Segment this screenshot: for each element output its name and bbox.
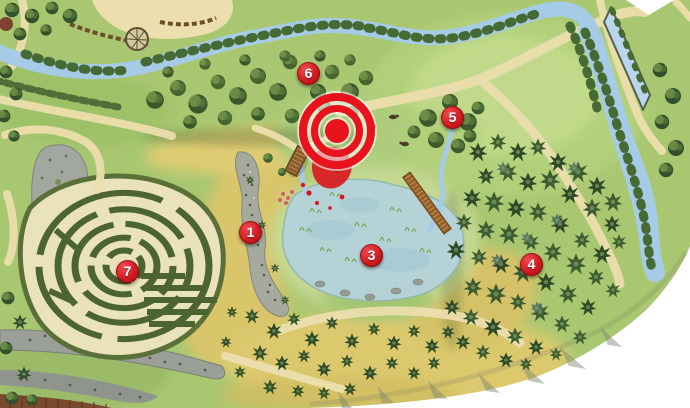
willow-dome-structure (126, 28, 148, 50)
map-marker-7[interactable]: 7 (116, 260, 139, 283)
target-location-marker[interactable] (299, 93, 375, 169)
map-marker-4[interactable]: 4 (520, 253, 543, 276)
park-map-illustration (0, 0, 690, 408)
target-center-dot (325, 119, 349, 143)
map-marker-6[interactable]: 6 (297, 62, 320, 85)
map-marker-1[interactable]: 1 (239, 221, 262, 244)
map-marker-3[interactable]: 3 (360, 244, 383, 267)
map-marker-5[interactable]: 5 (441, 106, 464, 129)
park-map: 134567 (0, 0, 690, 408)
